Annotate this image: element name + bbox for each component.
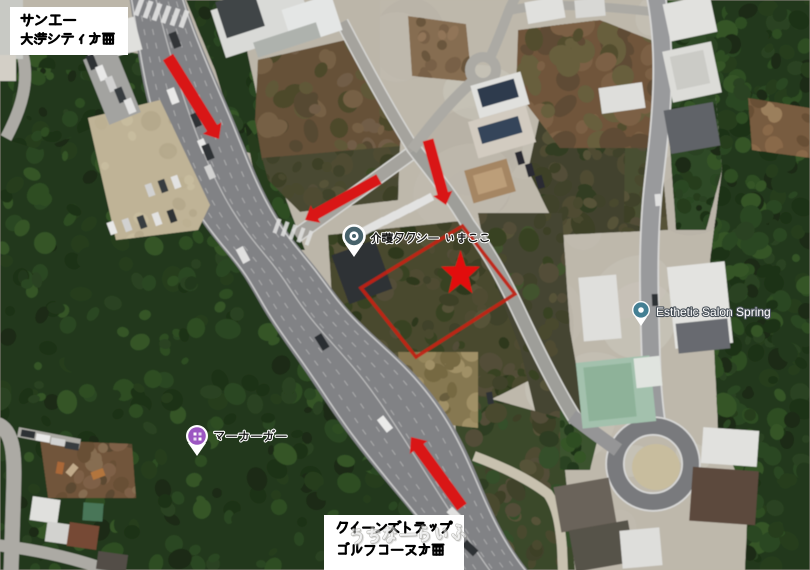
svg-text:Esthetic Salon Spring: Esthetic Salon Spring xyxy=(656,305,771,319)
